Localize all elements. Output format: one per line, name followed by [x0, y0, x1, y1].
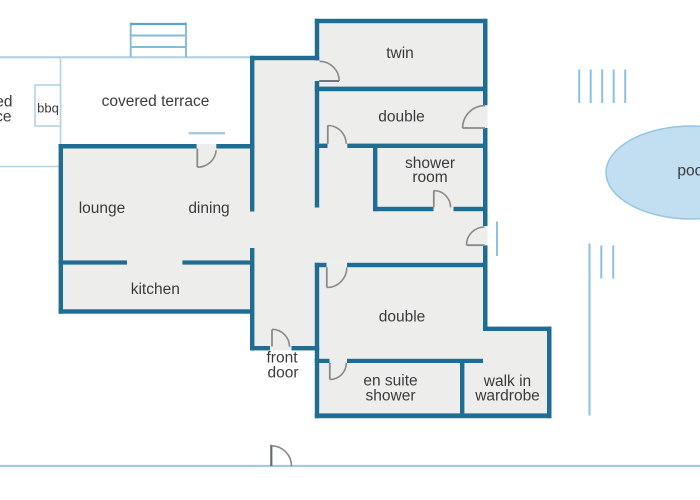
svg-text:pool: pool [677, 163, 700, 180]
svg-text:terrace: terrace [0, 109, 12, 126]
svg-text:covered terrace: covered terrace [102, 93, 210, 110]
svg-text:dining: dining [188, 200, 229, 217]
svg-text:lounge: lounge [79, 200, 126, 217]
svg-text:door: door [267, 365, 298, 382]
svg-text:double: double [378, 108, 425, 125]
svg-text:room: room [412, 169, 447, 186]
svg-text:twin: twin [386, 45, 414, 62]
svg-text:wardrobe: wardrobe [474, 387, 540, 404]
svg-text:double: double [379, 309, 426, 326]
svg-text:shower: shower [366, 388, 416, 405]
svg-text:kitchen: kitchen [131, 281, 180, 298]
svg-text:bbq: bbq [37, 101, 59, 116]
